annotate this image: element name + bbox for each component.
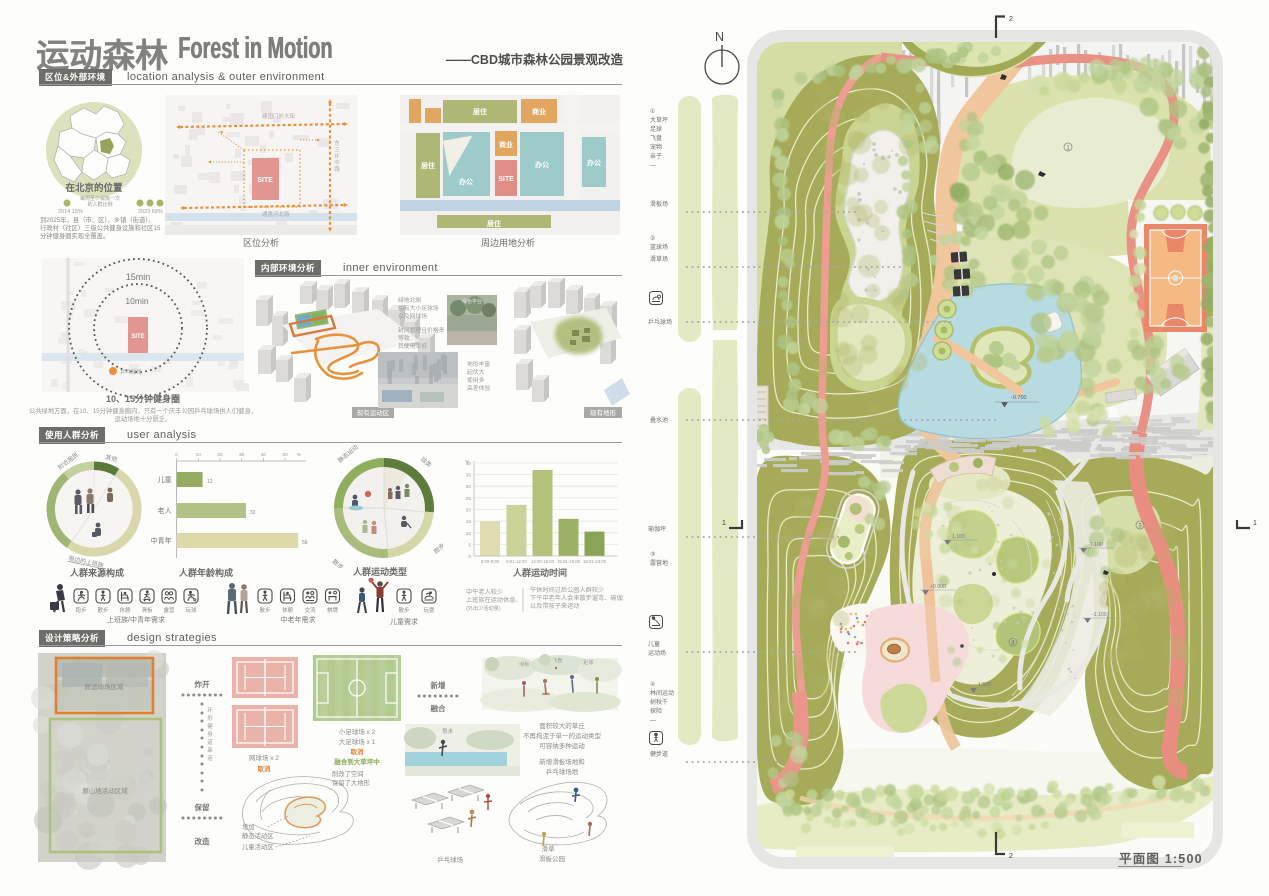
svg-text:球类: 球类 (419, 455, 433, 469)
svg-text:15: 15 (466, 519, 472, 525)
svg-text:足球: 足球 (583, 658, 594, 666)
svg-text:SITE: SITE (131, 334, 144, 340)
svg-text:到2025年，县（市、区）、乡镇（街道）、: 到2025年，县（市、区）、乡镇（街道）、 (40, 215, 155, 224)
svg-text:人群运动类型: 人群运动类型 (352, 566, 407, 577)
svg-text:儿童活动区: 儿童活动区 (242, 842, 273, 851)
svg-text:2: 2 (1009, 16, 1013, 23)
svg-text:-1.100: -1.100 (1088, 542, 1103, 548)
svg-text:乒乓球场: 乒乓球场 (120, 368, 143, 376)
svg-text:50: 50 (282, 452, 288, 458)
svg-text:静态运动: 静态运动 (336, 445, 360, 465)
svg-text:滑板公园: 滑板公园 (539, 854, 565, 863)
svg-text:N: N (715, 30, 724, 44)
svg-text:2014 15%: 2014 15% (58, 209, 83, 215)
svg-text:1.500: 1.500 (978, 682, 991, 688)
svg-text:以及带孩子来运动: 以及带孩子来运动 (530, 602, 580, 610)
svg-text:划水: 划水 (442, 727, 454, 735)
svg-text:32: 32 (250, 510, 256, 516)
svg-text:环: 环 (207, 707, 213, 714)
svg-text:林间运动: 林间运动 (650, 689, 674, 697)
svg-text:散步: 散步 (259, 606, 271, 614)
svg-text:交流: 交流 (304, 606, 316, 614)
svg-text:人群年龄构成: 人群年龄构成 (178, 567, 233, 578)
svg-text:保留: 保留 (194, 802, 210, 812)
svg-text:融合: 融合 (431, 703, 446, 713)
svg-text:其使用率低: 其使用率低 (398, 342, 427, 350)
svg-text:增加: 增加 (242, 822, 255, 831)
svg-text:在北京的位置: 在北京的位置 (65, 182, 123, 194)
svg-text:平面图 1:500: 平面图 1:500 (1119, 852, 1203, 866)
svg-text:老人: 老人 (158, 506, 172, 515)
svg-text:(外出少活动量): (外出少活动量) (466, 604, 501, 612)
svg-text:上班族在运动休息、: 上班族在运动休息、 (466, 596, 522, 604)
svg-text:绿色平台: 绿色平台 (462, 298, 482, 305)
svg-text:中老年需求: 中老年需求 (281, 615, 316, 624)
svg-text:儿童: 儿童 (158, 475, 172, 484)
svg-text:-0.700: -0.700 (1011, 395, 1027, 401)
svg-text:使用多: 使用多 (467, 376, 485, 384)
svg-text:健: 健 (207, 722, 213, 730)
svg-text:12:00-15:00: 12:00-15:00 (531, 559, 555, 564)
svg-text:SITE: SITE (257, 177, 273, 184)
svg-text:56: 56 (302, 540, 308, 546)
svg-text:运动场地十分匮乏。: 运动场地十分匮乏。 (115, 414, 172, 423)
svg-text:玩球: 玩球 (185, 606, 197, 614)
svg-text:1.100: 1.100 (952, 534, 965, 540)
svg-text:形: 形 (207, 714, 213, 722)
svg-text:可容纳多种运动: 可容纳多种运动 (539, 741, 585, 750)
svg-text:+0.000: +0.000 (930, 584, 946, 590)
svg-text:15min: 15min (126, 272, 151, 282)
svg-text:人群运动时间: 人群运动时间 (512, 567, 567, 578)
svg-text:瑜伽坪: 瑜伽坪 (648, 525, 666, 533)
svg-text:30: 30 (466, 484, 472, 490)
svg-text:现有地形: 现有地形 (590, 408, 617, 417)
svg-text:午休时间过后公园人群较少: 午休时间过后公园人群较少 (530, 586, 604, 594)
svg-text:道: 道 (207, 738, 213, 746)
svg-text:20: 20 (466, 508, 472, 514)
svg-text:商业: 商业 (532, 107, 546, 116)
svg-text:不再拘泥于单一的运动类型: 不再拘泥于单一的运动类型 (523, 731, 602, 740)
svg-text:篮球场: 篮球场 (650, 243, 668, 251)
svg-text:原运动场区域: 原运动场区域 (85, 682, 125, 691)
svg-text:③: ③ (650, 551, 655, 558)
svg-text:露营地: 露营地 (650, 559, 668, 567)
svg-text:融合到大草坪中: 融合到大草坪中 (334, 757, 380, 766)
svg-text:12: 12 (207, 479, 213, 485)
svg-text:乒乓球场: 乒乓球场 (648, 318, 672, 326)
svg-text:现有运动区: 现有运动区 (357, 408, 390, 417)
svg-text:中午老人较少: 中午老人较少 (466, 588, 503, 596)
svg-text:身: 身 (207, 730, 213, 738)
svg-text:%: % (297, 452, 302, 458)
svg-text:通惠河北路: 通惠河北路 (262, 210, 290, 218)
svg-text:探险: 探险 (650, 707, 662, 715)
svg-text:乒乓球场: 乒乓球场 (437, 855, 464, 864)
svg-text:6:00-9:00: 6:00-9:00 (481, 559, 500, 564)
svg-text:SITE: SITE (498, 176, 514, 183)
svg-text:树秋千: 树秋千 (650, 698, 668, 706)
svg-text:炸开: 炸开 (195, 679, 210, 689)
svg-text:面积较大的草丘: 面积较大的草丘 (539, 721, 585, 730)
svg-text:滑板: 滑板 (141, 606, 153, 614)
svg-text:办公: 办公 (587, 158, 601, 167)
svg-text:宠物: 宠物 (650, 143, 662, 151)
svg-text:儿童需求: 儿童需求 (390, 617, 418, 626)
svg-text:休憩: 休憩 (119, 606, 131, 614)
svg-text:改造: 改造 (195, 836, 210, 846)
svg-text:建国门外大街: 建国门外大街 (262, 112, 296, 120)
svg-text:分钟健身圈实现全覆盖。: 分钟健身圈实现全覆盖。 (40, 231, 109, 240)
svg-text:-1.100: -1.100 (1092, 612, 1107, 618)
svg-text:露营: 露营 (163, 606, 175, 614)
svg-text:商业: 商业 (499, 140, 513, 149)
svg-text:滑草场: 滑草场 (650, 255, 668, 263)
svg-text:网球场 x 2: 网球场 x 2 (249, 753, 279, 762)
svg-text:滑板场: 滑板场 (650, 200, 668, 208)
svg-text:东三环中路: 东三环中路 (333, 139, 340, 173)
svg-text:等致: 等致 (398, 334, 410, 342)
svg-text:办公: 办公 (535, 160, 549, 169)
svg-text:10: 10 (466, 531, 472, 537)
svg-text:拥有大小足球场: 拥有大小足球场 (398, 304, 439, 312)
svg-text:10: 10 (196, 452, 202, 458)
svg-text:②: ② (650, 235, 655, 242)
svg-text:乒乓球场地: 乒乓球场地 (546, 767, 579, 776)
svg-text:滑草: 滑草 (542, 844, 556, 853)
svg-text:串: 串 (207, 747, 213, 754)
svg-text:10min: 10min (125, 296, 148, 306)
svg-text:1: 1 (722, 520, 726, 527)
svg-text:飞盘: 飞盘 (650, 134, 662, 142)
svg-text:亲子: 亲子 (650, 152, 662, 160)
svg-text:高差体验: 高差体验 (467, 384, 490, 392)
svg-text:削改了空间: 削改了空间 (332, 769, 363, 778)
svg-text:35: 35 (466, 473, 472, 479)
svg-text:跑步: 跑步 (75, 606, 87, 614)
svg-text:健步道: 健步道 (650, 750, 668, 758)
svg-text:新增: 新增 (431, 680, 446, 690)
svg-text:棋牌: 棋牌 (327, 606, 339, 614)
svg-text:30: 30 (239, 452, 245, 458)
svg-text:—: — (650, 718, 656, 724)
svg-text:周边用地分析: 周边用地分析 (481, 237, 535, 248)
svg-text:散步: 散步 (398, 606, 410, 614)
svg-text:滑板: 滑板 (519, 660, 530, 668)
svg-text:18:01-23:00: 18:01-23:00 (583, 559, 607, 564)
svg-text:下午中老年人会来散步遛弯、瑜伽: 下午中老年人会来散步遛弯、瑜伽 (530, 594, 623, 602)
svg-text:新增滑板场地和: 新增滑板场地和 (539, 757, 585, 766)
svg-text:人群来源构成: 人群来源构成 (69, 567, 124, 578)
svg-text:公共绿地方面，在10、15分钟健身圈内，只有一个庆丰公园乒乓: 公共绿地方面，在10、15分钟健身圈内，只有一个庆丰公园乒乓球场供人们健身， (29, 406, 257, 415)
svg-text:2023 68%: 2023 68% (138, 209, 163, 215)
svg-text:大足球场 x 1: 大足球场 x 1 (339, 737, 376, 746)
svg-text:地形丰富: 地形丰富 (467, 360, 490, 368)
svg-text:取消: 取消 (258, 764, 272, 773)
svg-text:25: 25 (466, 496, 472, 502)
svg-text:行政村（社区）三级公共健身设施和社区15: 行政村（社区）三级公共健身设施和社区15 (40, 223, 161, 232)
svg-text:绿地北侧: 绿地北侧 (398, 296, 421, 304)
svg-text:静态活动区: 静态活动区 (242, 831, 273, 840)
svg-text:休憩: 休憩 (282, 606, 294, 614)
svg-text:小足球场 x 2: 小足球场 x 2 (339, 727, 376, 736)
svg-text:0: 0 (468, 554, 471, 560)
svg-text:上班族/中青年需求: 上班族/中青年需求 (107, 615, 165, 624)
svg-text:大草坪: 大草坪 (650, 116, 668, 124)
svg-text:儿童: 儿童 (648, 640, 660, 648)
svg-text:居住: 居住 (473, 107, 487, 116)
svg-text:%: % (465, 459, 470, 465)
svg-text:居住: 居住 (487, 219, 501, 228)
svg-text:9:01-12:00: 9:01-12:00 (506, 559, 527, 564)
svg-text:15:01-18:00: 15:01-18:00 (557, 559, 581, 564)
svg-text:其他: 其他 (105, 453, 118, 463)
svg-text:玩耍: 玩耍 (423, 607, 435, 614)
svg-text:40: 40 (261, 452, 267, 458)
svg-text:以及网球场: 以及网球场 (398, 312, 427, 320)
svg-text:0: 0 (175, 452, 178, 458)
svg-text:①: ① (650, 108, 655, 115)
svg-text:20: 20 (217, 452, 223, 458)
svg-text:区位分析: 区位分析 (243, 237, 279, 248)
svg-text:—: — (650, 163, 656, 169)
svg-text:1: 1 (1253, 520, 1257, 527)
svg-text:飞盘: 飞盘 (552, 656, 562, 664)
svg-text:原山地活动区域: 原山地活动区域 (82, 786, 128, 795)
svg-text:封闭管理且价格贵: 封闭管理且价格贵 (398, 326, 445, 334)
svg-text:保留了大地形: 保留了大地形 (332, 778, 370, 787)
svg-text:散步: 散步 (97, 606, 109, 614)
svg-text:5: 5 (468, 542, 471, 548)
svg-text:连: 连 (207, 754, 213, 762)
svg-text:办公: 办公 (459, 177, 473, 186)
svg-text:散步: 散步 (331, 557, 345, 571)
svg-text:的人群比例: 的人群比例 (87, 201, 112, 208)
svg-text:运动场: 运动场 (648, 649, 666, 657)
svg-text:起伏大: 起伏大 (467, 368, 485, 376)
svg-text:居住: 居住 (421, 161, 435, 170)
svg-text:跑步: 跑步 (432, 542, 446, 556)
svg-text:中青年: 中青年 (151, 536, 172, 545)
svg-text:每周至少锻炼一次: 每周至少锻炼一次 (80, 195, 120, 202)
svg-text:足球: 足球 (650, 125, 662, 133)
svg-text:取消: 取消 (351, 747, 365, 756)
svg-text:叠水池: 叠水池 (650, 416, 668, 424)
svg-text:④: ④ (650, 681, 655, 688)
svg-text:2: 2 (1009, 853, 1013, 860)
svg-text:10、15分钟健身圈: 10、15分钟健身圈 (106, 393, 180, 404)
